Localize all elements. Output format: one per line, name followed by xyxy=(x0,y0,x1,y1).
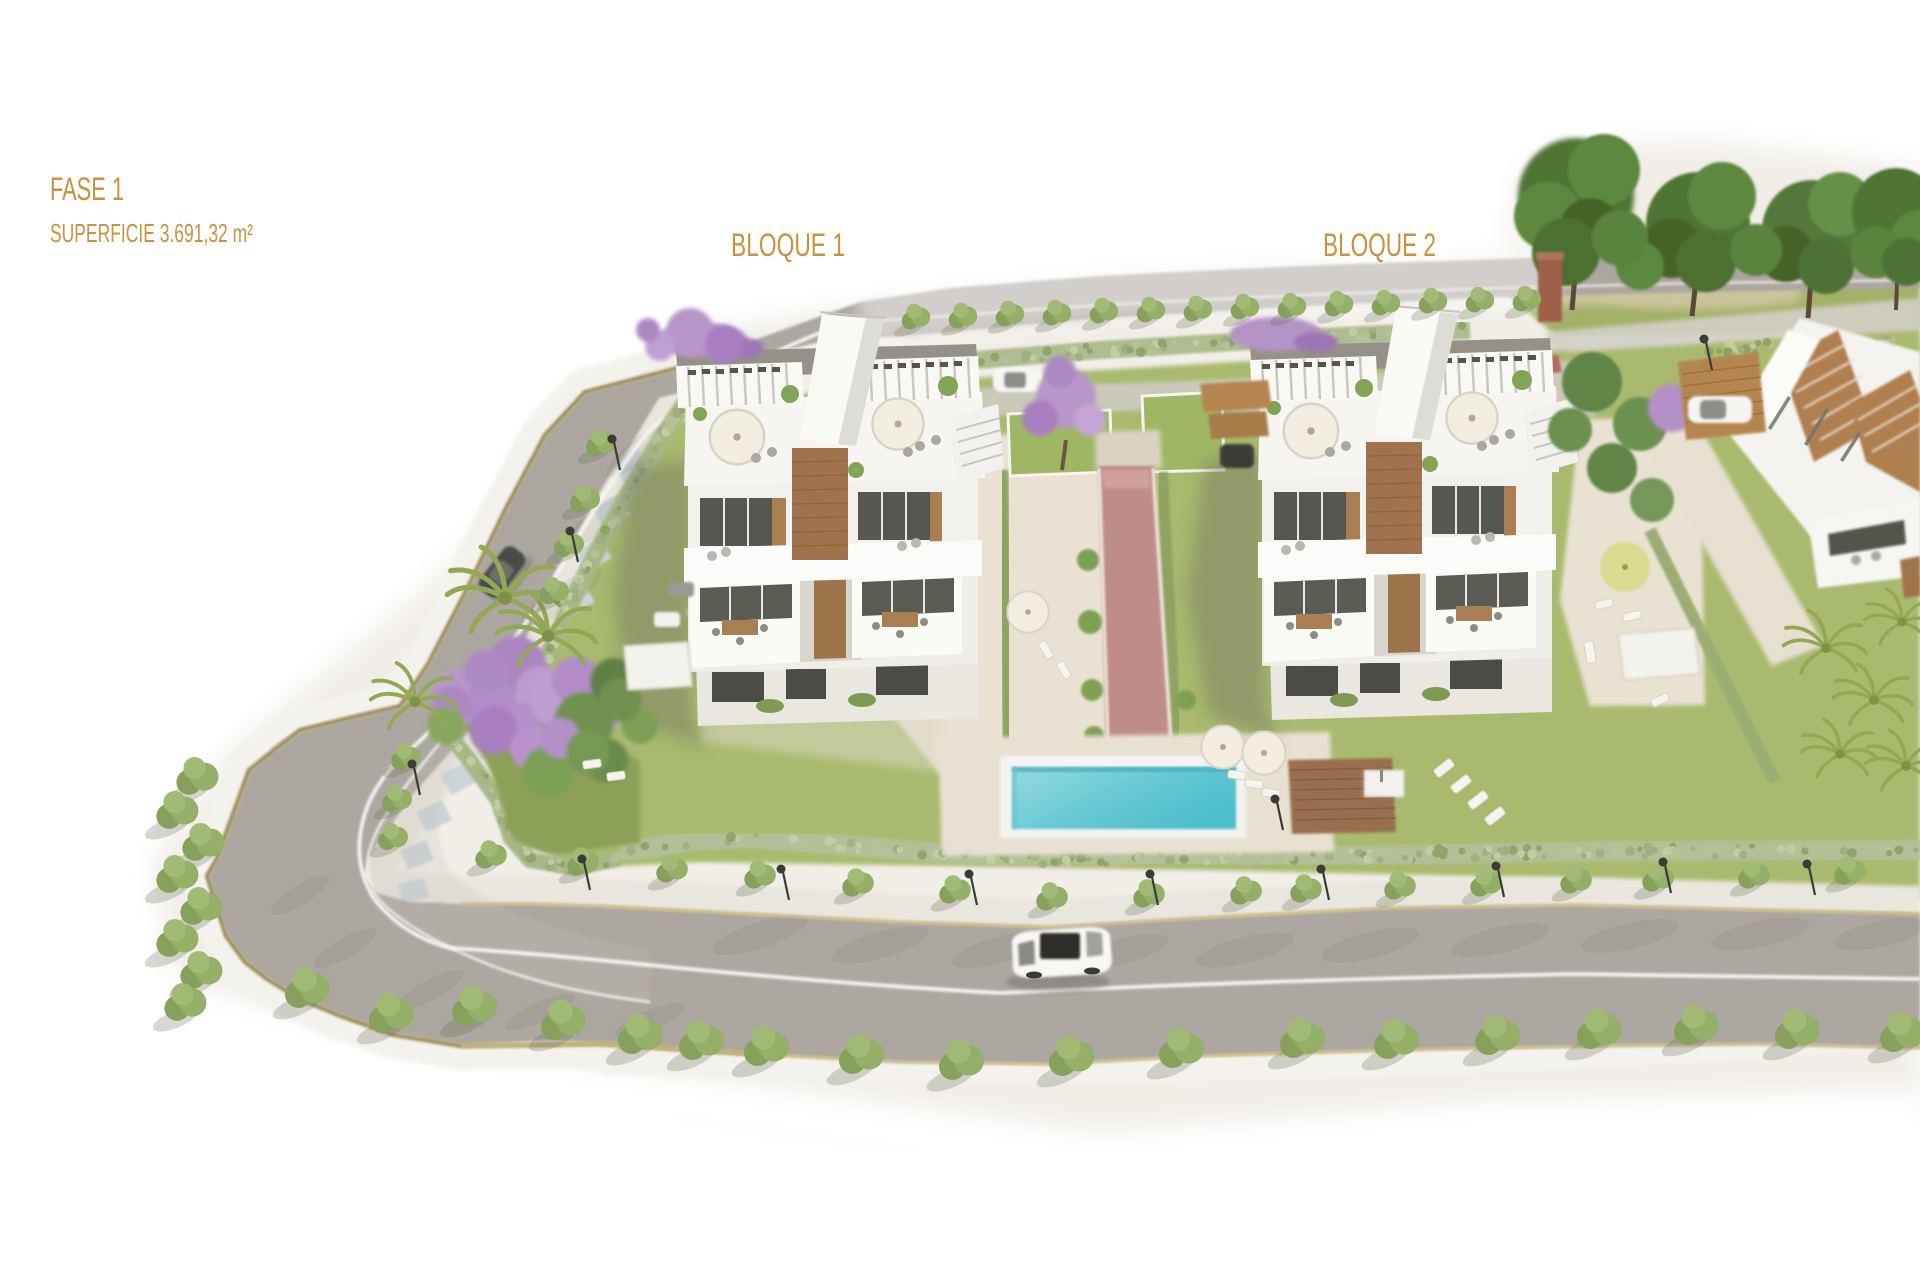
svg-text:SUPERFICIE 3.691,32 m²: SUPERFICIE 3.691,32 m² xyxy=(50,218,253,248)
svg-text:BLOQUE 2: BLOQUE 2 xyxy=(1323,227,1436,263)
svg-text:BLOQUE 1: BLOQUE 1 xyxy=(731,227,845,263)
svg-text:FASE 1: FASE 1 xyxy=(50,171,124,207)
